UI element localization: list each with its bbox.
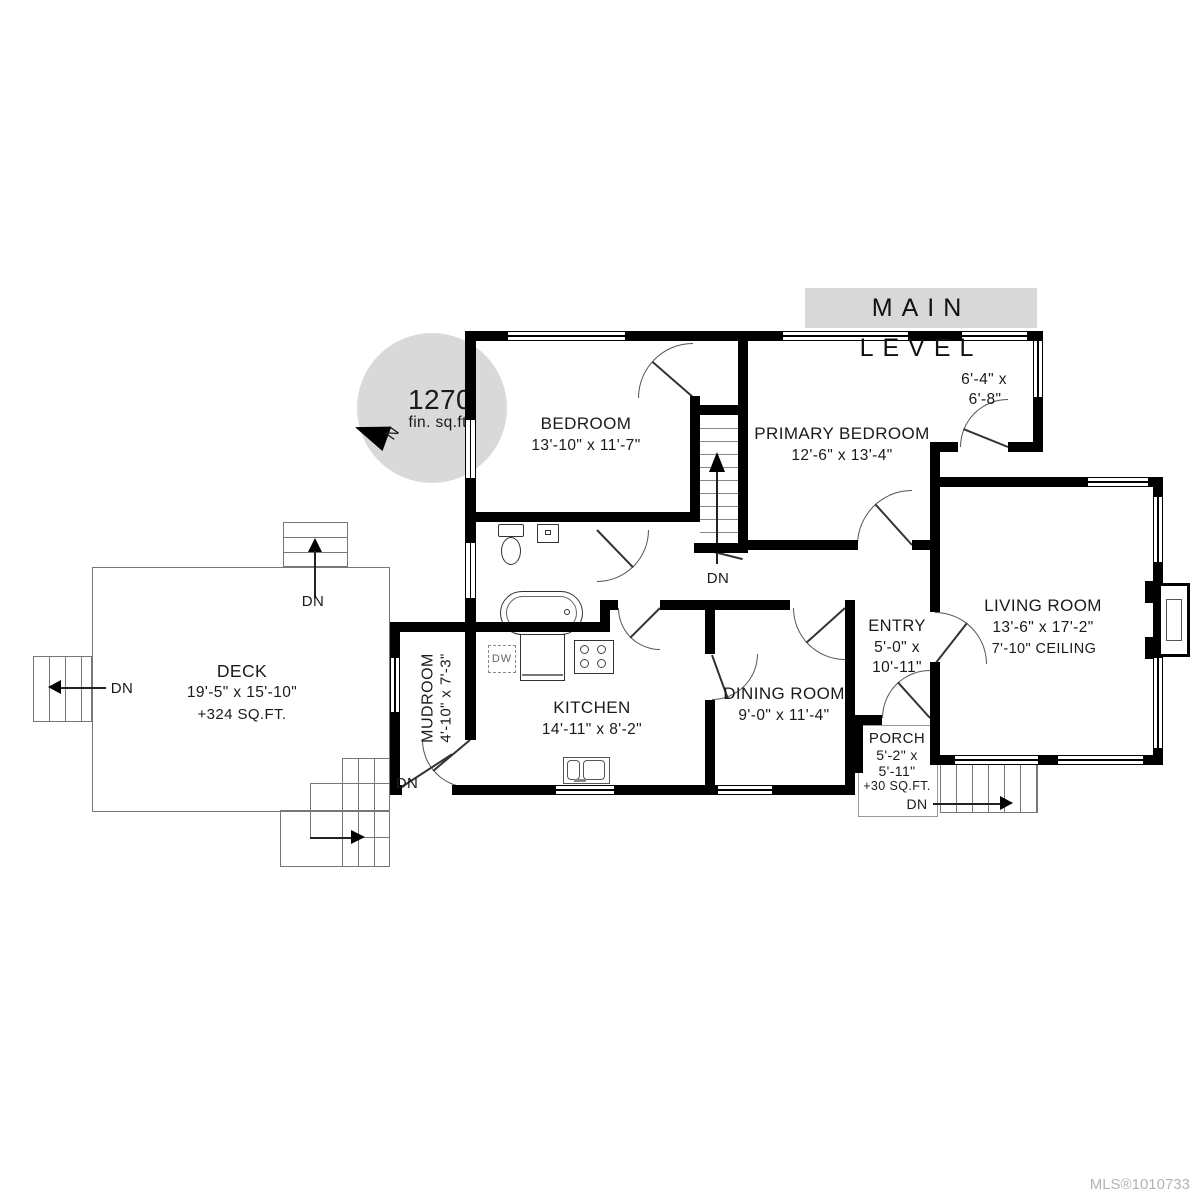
- wall-segment: [738, 331, 748, 550]
- room-dims-deck: 19'-5" x 15'-10": [187, 684, 297, 703]
- porch-dn-line: [933, 803, 1001, 805]
- wall-segment: [390, 622, 476, 632]
- wall-segment: [465, 512, 700, 522]
- room-label-bedroom: BEDROOM: [541, 414, 632, 434]
- wall-segment: [845, 610, 855, 795]
- deck-stairs-bottom-line: [310, 837, 352, 839]
- room-dims-mudroom: 4'-10" x 7'-3": [438, 653, 455, 743]
- window: [465, 420, 476, 478]
- wall-segment: [845, 600, 855, 610]
- deck-stairs-left-arrow-icon: [48, 680, 61, 694]
- stair-direction-arrow-icon: [709, 452, 725, 472]
- wall-segment: [930, 715, 940, 725]
- room-ceiling-living-room: 7'-10" CEILING: [992, 641, 1097, 658]
- deck-stairs-landing: [280, 810, 390, 867]
- room-dims-dining-room: 9'-0" x 11'-4": [738, 707, 829, 726]
- wall-segment: [600, 600, 618, 610]
- staircase: [700, 416, 738, 543]
- wall-segment: [705, 700, 715, 790]
- stove-burner: [580, 659, 589, 668]
- deck-stairs-left: [33, 656, 92, 722]
- room-dims-porch-2: 5'-11": [878, 763, 915, 780]
- fireplace-firebox: [1166, 599, 1182, 641]
- mls-number: MLS®1010733: [1040, 1176, 1190, 1193]
- wall-segment: [855, 725, 863, 773]
- stove-burner: [597, 645, 606, 654]
- window: [556, 785, 614, 795]
- bathroom-sink-faucet: [545, 530, 551, 535]
- stove-burner: [597, 659, 606, 668]
- compass-area-unit: fin. sq.ft.: [409, 414, 472, 433]
- wall-segment: [452, 785, 855, 795]
- window: [508, 331, 625, 341]
- deck-stairs-left-dn: DN: [111, 680, 133, 698]
- door-arc: [935, 612, 987, 664]
- window: [1033, 341, 1043, 397]
- room-dims-entry-1: 5'-0" x: [874, 639, 920, 658]
- window: [465, 543, 476, 598]
- bathtub-drain: [564, 609, 570, 615]
- kitchen-sink-basin: [583, 760, 605, 780]
- wall-segment: [694, 543, 748, 553]
- plan-title-box: MAIN LEVEL: [805, 288, 1037, 328]
- room-label-kitchen: KITCHEN: [553, 698, 630, 718]
- stair-down-label: DN: [707, 570, 729, 588]
- closet-dims-line1: 6'-4" x: [961, 371, 1007, 390]
- deck-stairs-top-dn: DN: [302, 593, 324, 611]
- wall-segment: [930, 442, 958, 452]
- kitchen-sink-basin: [567, 760, 580, 780]
- room-dims-bedroom: 13'-10" x 11'-7": [531, 437, 640, 456]
- room-dims-entry-2: 10'-11": [872, 659, 922, 678]
- porch-steps: [940, 760, 1038, 813]
- window: [390, 658, 400, 712]
- room-extra-deck: +324 SQ.FT.: [197, 706, 286, 724]
- wall-segment: [930, 442, 940, 612]
- wall-segment: [1033, 397, 1043, 452]
- window: [1153, 658, 1163, 748]
- wall-segment: [465, 632, 476, 740]
- room-label-living-room: LIVING ROOM: [984, 596, 1102, 616]
- deck-stairs-bottom-arrow-icon: [351, 830, 365, 844]
- wall-segment: [465, 622, 610, 632]
- wall-segment: [855, 715, 882, 725]
- room-label-primary-bedroom: PRIMARY BEDROOM: [754, 424, 929, 444]
- wall-segment: [930, 662, 940, 765]
- wall-segment: [748, 540, 858, 550]
- floor-plan: MAIN LEVEL 1270 fin. sq.ft. N: [0, 0, 1200, 1200]
- dishwasher-label: DW: [492, 653, 512, 665]
- dishwasher-icon: DW: [488, 645, 516, 673]
- room-label-entry: ENTRY: [868, 617, 926, 637]
- porch-dn-label: DN: [906, 796, 927, 813]
- deck-stairs-top-arrow-icon: [308, 538, 322, 552]
- toilet-bowl-icon: [501, 537, 521, 565]
- room-label-mudroom: MUDROOM: [420, 653, 438, 743]
- toilet-tank-icon: [498, 524, 524, 537]
- room-label-deck: DECK: [217, 661, 267, 682]
- wall-segment: [660, 600, 790, 610]
- window: [1153, 497, 1163, 562]
- room-label-dining-room: DINING ROOM: [723, 684, 845, 704]
- window: [718, 785, 772, 795]
- closet-dims-line2: 6'-8": [969, 391, 1002, 410]
- room-dims-porch-1: 5'-2" x: [876, 747, 918, 764]
- window: [955, 755, 1038, 765]
- deck-stairs-left-line: [60, 687, 106, 689]
- room-dims-primary-bedroom: 12'-6" x 13'-4": [791, 447, 892, 466]
- window: [1088, 477, 1148, 487]
- refrigerator-handle: [522, 674, 563, 676]
- kitchen-sink-faucet: [574, 779, 586, 782]
- porch-steps-arrow-icon: [1000, 796, 1013, 810]
- wall-segment: [705, 610, 715, 654]
- stove-icon: [574, 640, 614, 674]
- room-extra-porch: +30 SQ.FT.: [863, 779, 931, 794]
- stove-burner: [580, 645, 589, 654]
- room-dims-kitchen: 14'-11" x 8'-2": [542, 721, 642, 740]
- room-dims-living-room: 13'-6" x 17'-2": [992, 619, 1093, 638]
- room-label-porch: PORCH: [869, 730, 925, 748]
- window: [1058, 755, 1143, 765]
- room-label-mudroom-group: MUDROOM 4'-10" x 7'-3": [420, 653, 455, 743]
- plan-title: MAIN LEVEL: [860, 294, 983, 362]
- deck-stairs-top-line: [314, 551, 316, 598]
- deck-stairs-bottom-dn: DN: [396, 775, 418, 793]
- compass-area-value: 1270: [408, 383, 472, 417]
